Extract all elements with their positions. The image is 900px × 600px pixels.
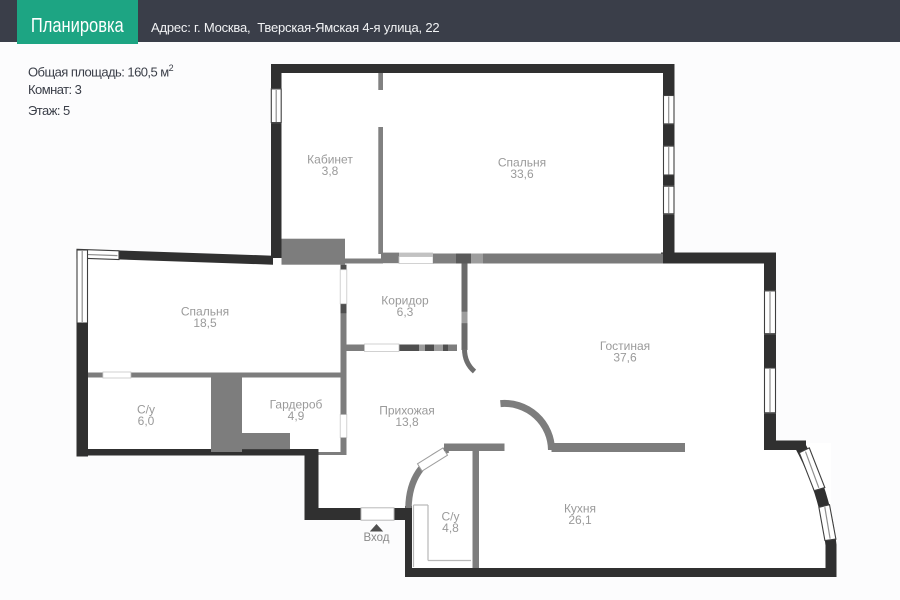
svg-text:3,8: 3,8 <box>322 164 339 178</box>
svg-text:Вход: Вход <box>363 532 389 544</box>
svg-text:4,8: 4,8 <box>442 521 459 535</box>
svg-text:18,5: 18,5 <box>193 316 217 330</box>
svg-text:4,9: 4,9 <box>288 409 305 423</box>
svg-text:33,6: 33,6 <box>510 167 534 181</box>
svg-text:37,6: 37,6 <box>613 351 637 365</box>
svg-text:13,8: 13,8 <box>395 415 419 429</box>
svg-text:6,0: 6,0 <box>138 414 155 428</box>
svg-text:26,1: 26,1 <box>568 513 592 527</box>
svg-text:6,3: 6,3 <box>397 305 414 319</box>
